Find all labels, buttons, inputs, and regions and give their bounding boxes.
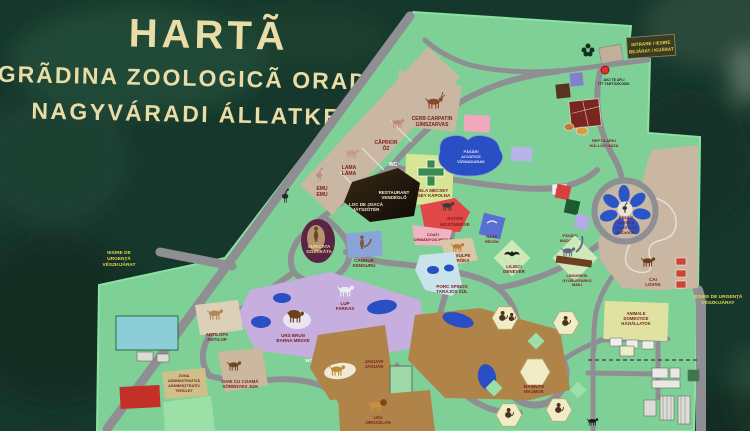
tortoise-icon-1: [564, 124, 574, 131]
exotic-birds-aviary: PĂSĂRI EXOTICE EGZOTIKUS MADARAK: [595, 181, 656, 242]
maimute-label-hu: MAJMOK: [524, 389, 545, 394]
caprior-label-ro: CĂPRIOR: [374, 139, 397, 146]
emu-label-hu: EMU: [316, 192, 328, 198]
reptilariu-label-hu: HÜLLŐK HÁZA: [590, 143, 619, 148]
exotice-label-1: PĂSĂRI: [619, 215, 633, 220]
title-harta: HARTÃ: [128, 10, 289, 59]
suricata-label-hu: SZURIKÁTA: [306, 248, 332, 254]
waterfowl-lake: PĂSĂRI ACVATICE VÍZIMADARAK: [439, 136, 503, 177]
wc-label-1: WC: [389, 162, 398, 168]
lemur-label-1: LEMURIENI: [567, 274, 588, 278]
cangur-label-hu: KENGURU: [353, 263, 376, 268]
urs-label-hu: BARNA MEDVE: [276, 338, 309, 343]
admin-label-4: TERÜLET: [175, 388, 193, 393]
exotice-label-3: EGZOTIKUS: [615, 226, 638, 230]
lama-label-hu: LÁMA: [342, 170, 357, 177]
playground-label-hu: JÁTSZÓTÉR: [353, 205, 381, 212]
tortoise-icon-2: [576, 127, 588, 135]
lilieci-label-hu: DENEVÉR: [503, 267, 526, 274]
cerb-label-hu: GÍMSZARVAS: [416, 120, 450, 128]
stable-3: [676, 281, 686, 288]
exit-left-line2: URGENȚĂ: [107, 255, 131, 262]
shed-1: [137, 352, 153, 361]
admin-label-1: ZONA: [179, 374, 190, 378]
antilopa-label-hu: ANTILOP: [207, 337, 227, 342]
domestice-label-3: HÁZIÁLLATOK: [621, 321, 650, 326]
teal-building: [116, 316, 178, 350]
lemur-label-3: MAKI: [572, 283, 582, 287]
you-are-here-label-hu: ITT TARTÓZKODIK: [598, 81, 630, 86]
admin-zone: ZONA ADMINISTRATIVĂ ADMINISZTRATÍV TERÜL…: [162, 368, 208, 399]
lavender-building: [511, 146, 533, 161]
exit-right-line1: IESIRE DE URGENȚĂ: [694, 293, 743, 300]
path-exit-right: [698, 290, 701, 431]
path-grid-mid: [588, 373, 658, 374]
red-building: [119, 385, 160, 409]
jaguar-label-hu: JAGUÁR: [364, 363, 384, 369]
zoo-map-sign-photo: HARTÃ GRÃDINA ZOOLOGICÃ ORADEA NAGYVÁRAD…: [0, 0, 750, 431]
raton-label-hu: MOSÓMEDVE: [440, 220, 470, 227]
exit-left-line1: IESIRE DE: [107, 250, 132, 256]
admin-label-2: ADMINISTRATIVĂ: [168, 378, 200, 383]
stable-1: [676, 258, 686, 265]
admin-label-3: ADMINISZTRATÍV: [168, 383, 200, 388]
porc-label-hu: TARAJOS SÜL: [436, 288, 468, 294]
acvatice-label-3: VÍZIMADARAK: [457, 159, 485, 164]
emergency-exit-left: IESIRE DE URGENȚĂ VÉSZKIJÁRAT: [103, 250, 136, 268]
enclosure-suricata: SURICATA SZURIKÁTA: [301, 219, 335, 263]
entrance-badge: INTRARE / IESIRE BEJÁRAT / KIJÁRAT: [626, 34, 675, 58]
restaurant-label-hu: VENDÉGLŐ: [381, 193, 407, 200]
shed-2: [157, 354, 169, 362]
green-yard: [163, 396, 215, 431]
enclosure-oaie: OAIE CU COAMĂ SÖRÉNYES JUH: [218, 348, 268, 392]
raton-label-ro: RATON: [447, 216, 463, 221]
oaie-label-hu: SÖRÉNYES JUH: [222, 382, 257, 389]
pink-building: [464, 114, 491, 132]
you-are-here-dot: [601, 66, 609, 74]
rate-label-hu: RÉCÉK: [485, 239, 499, 244]
small-pen: [390, 366, 412, 394]
gate-building: [599, 44, 623, 64]
leu-label-hu: OROSZLÁN: [365, 419, 390, 425]
cai-label-hu: LOVAK: [645, 282, 661, 287]
caprior-label-hu: ŐZ: [383, 145, 390, 152]
exotice-label-4: MADARAK: [616, 231, 636, 235]
vulpe-label-hu: RÓKA: [456, 256, 470, 263]
lup-label-hu: FARKAS: [336, 306, 355, 311]
stable-2: [676, 270, 686, 277]
exotice-label-2: EXOTICE: [618, 221, 635, 225]
